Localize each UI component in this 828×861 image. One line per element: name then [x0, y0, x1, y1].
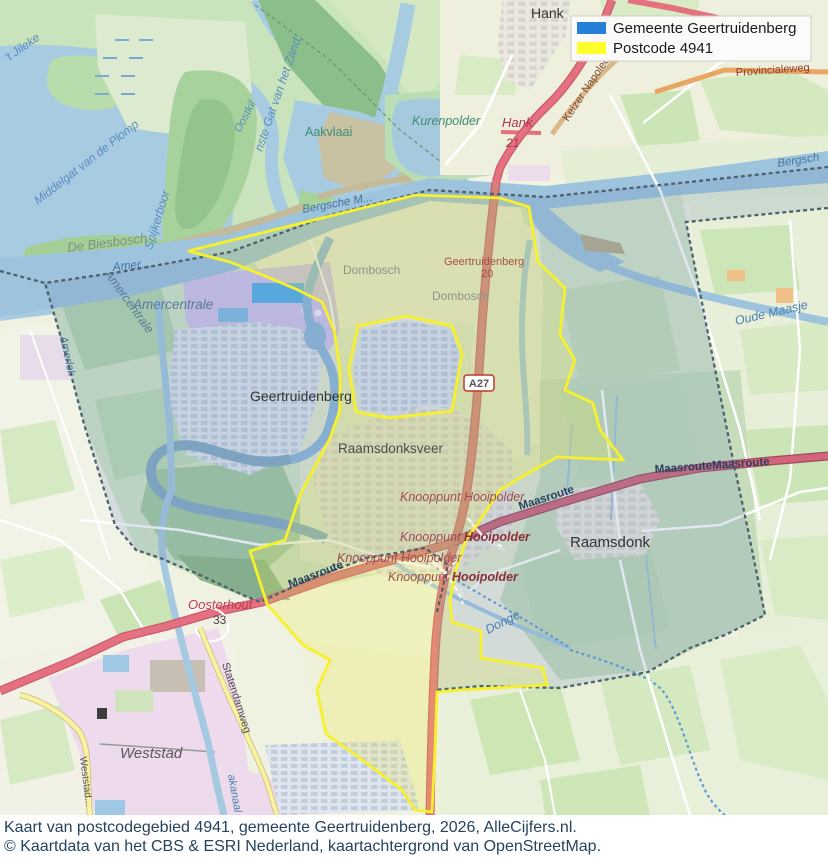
- svg-text:Knooppunt Hooipolder: Knooppunt Hooipolder: [400, 490, 525, 504]
- svg-text:Dombosch: Dombosch: [343, 263, 400, 277]
- svg-text:20: 20: [481, 268, 493, 280]
- svg-text:A27: A27: [469, 378, 489, 390]
- svg-text:Raamsdonksveer: Raamsdonksveer: [338, 441, 444, 456]
- svg-text:33: 33: [213, 613, 227, 627]
- svg-text:Kaart van postcodegebied 4941,: Kaart van postcodegebied 4941, gemeente …: [4, 819, 577, 836]
- svg-text:Postcode 4941: Postcode 4941: [613, 40, 713, 57]
- svg-text:Oosterhout: Oosterhout: [188, 597, 254, 612]
- svg-text:Geertruidenberg: Geertruidenberg: [444, 256, 524, 268]
- svg-text:© Kaartdata van het CBS & ESRI: © Kaartdata van het CBS & ESRI Nederland…: [4, 838, 601, 855]
- svg-text:Knooppunt Hooipolder: Knooppunt Hooipolder: [337, 551, 462, 565]
- svg-text:Kurenpolder: Kurenpolder: [412, 114, 481, 128]
- svg-text:Hank: Hank: [502, 115, 534, 130]
- svg-text:Weststad: Weststad: [120, 745, 183, 762]
- svg-text:Raamsdonk: Raamsdonk: [570, 534, 651, 551]
- svg-text:Aakvlaai: Aakvlaai: [305, 125, 352, 139]
- svg-text:Amercentrale: Amercentrale: [132, 297, 213, 312]
- svg-text:Gemeente Geertruidenberg: Gemeente Geertruidenberg: [613, 20, 796, 37]
- svg-text:21: 21: [505, 136, 519, 150]
- svg-text:Hank: Hank: [531, 5, 565, 21]
- svg-text:Geertruidenberg: Geertruidenberg: [250, 388, 352, 404]
- svg-text:Knooppunt Hooipolder: Knooppunt Hooipolder: [400, 530, 531, 544]
- svg-text:Dombosch: Dombosch: [432, 289, 489, 303]
- svg-text:Knooppunt Hooipolder: Knooppunt Hooipolder: [388, 570, 519, 584]
